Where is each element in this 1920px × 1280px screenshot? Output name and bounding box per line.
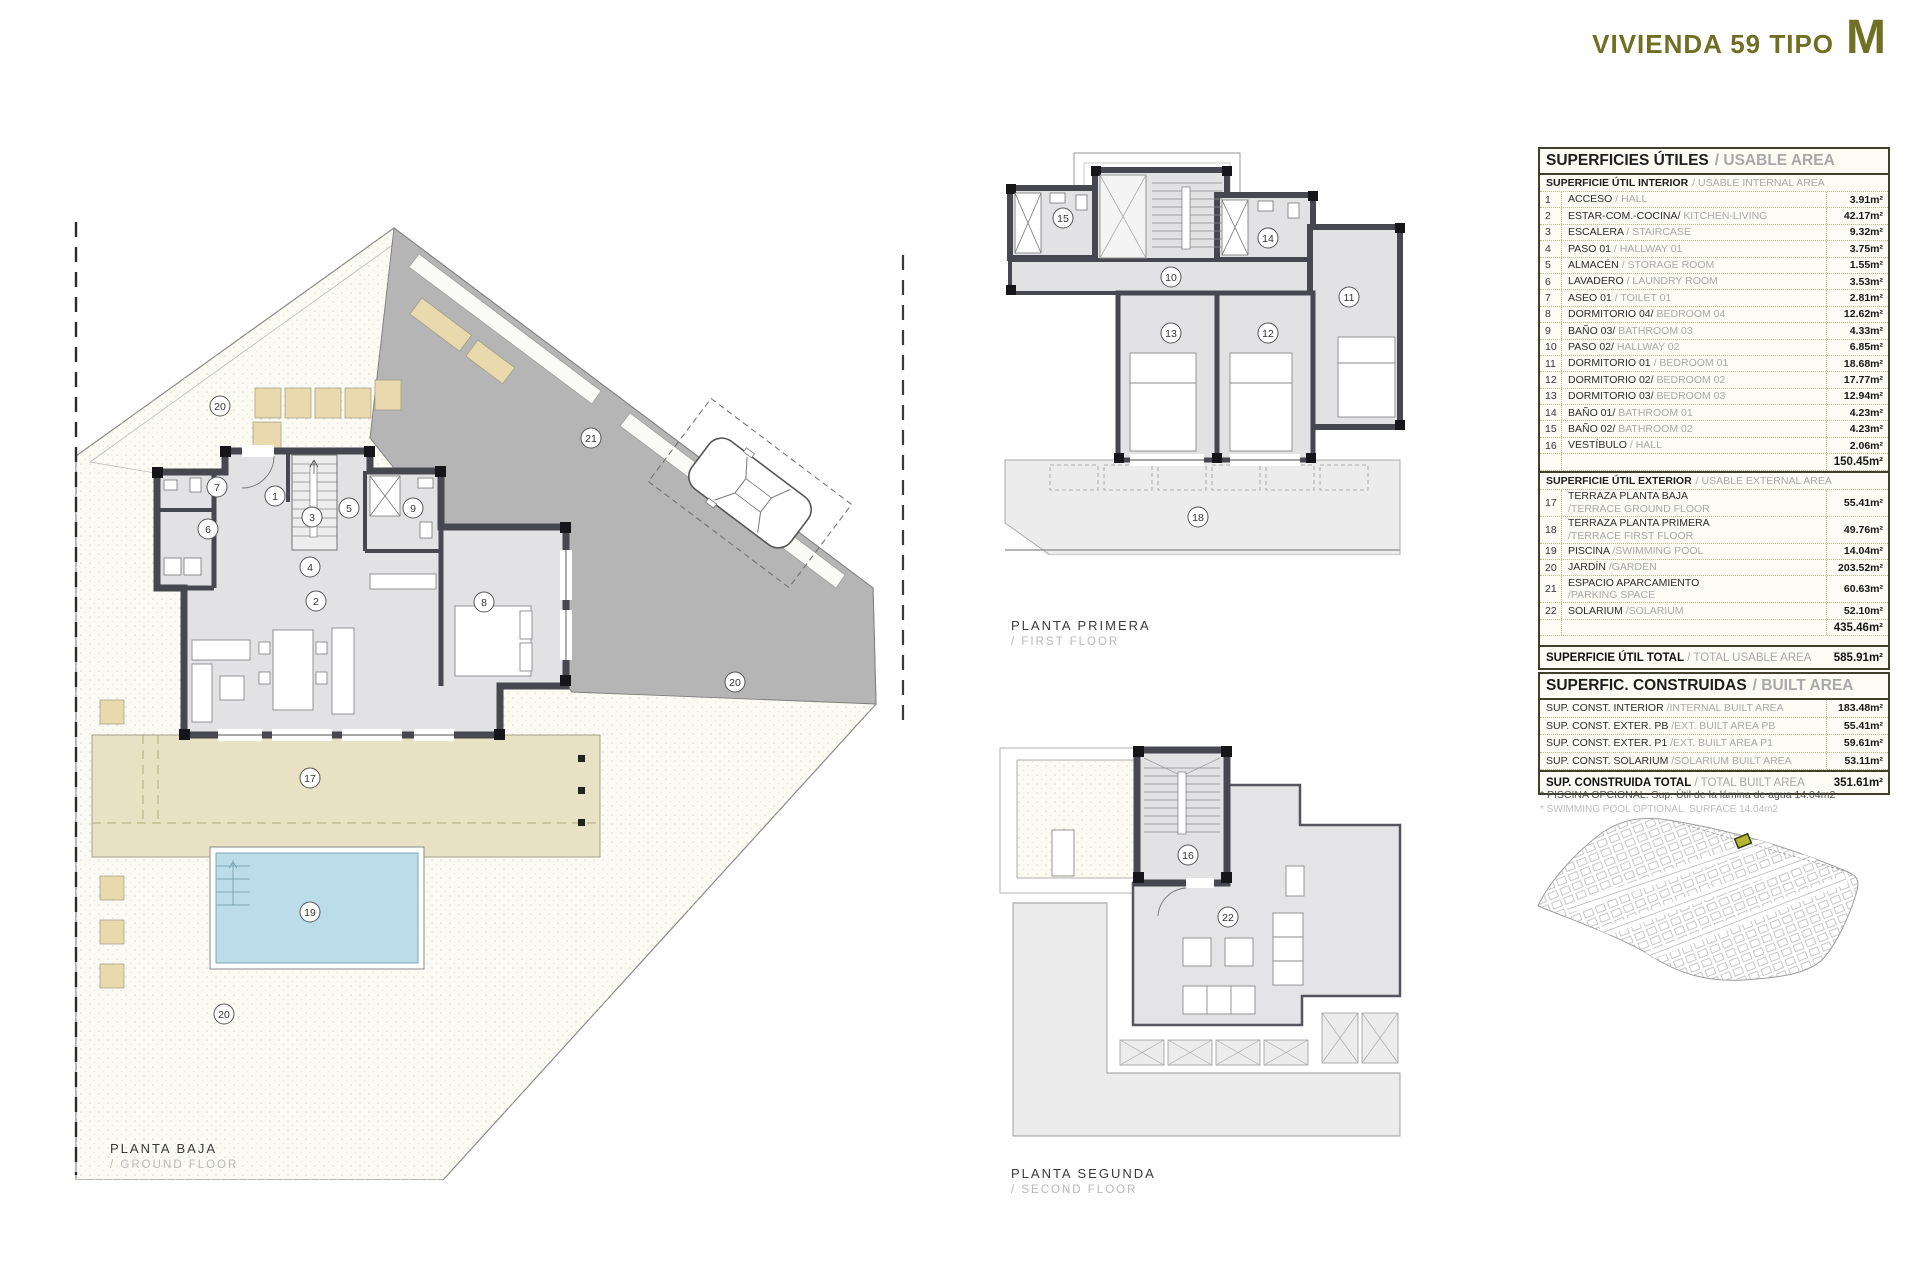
room-number-ground-storage: 5 [339, 498, 359, 518]
usable-area-table-title: SUPERFICIES ÚTILES / USABLE AREA [1540, 149, 1888, 175]
table-spacer [1540, 636, 1888, 645]
room-number-ground-hall: 1 [265, 486, 285, 506]
table-row: 19 PISCINA /SWIMMING POOL 14.04m² [1540, 544, 1888, 560]
room-number-ground-garden-right: 20 [725, 672, 745, 692]
room-number-ground-bath3: 9 [403, 498, 423, 518]
usable-area-table: SUPERFICIES ÚTILES / USABLE AREA SUPERFI… [1538, 147, 1890, 670]
table-row: 22 SOLARIUM /SOLARIUM 52.10m² [1540, 603, 1888, 619]
svg-text:6: 6 [205, 524, 211, 536]
room-number-first-terrace: 18 [1188, 507, 1208, 527]
table-row: 15 BAÑO 02/ BATHROOM 02 4.23m² [1540, 421, 1888, 437]
svg-text:20: 20 [729, 677, 741, 689]
label-second-floor: PLANTA SEGUNDA / SECOND FLOOR [1011, 1166, 1156, 1196]
footnote-pool-es: * PISCINA OPCIONAL. Sup. Útil de la lámi… [1540, 789, 1835, 801]
svg-text:9: 9 [410, 503, 416, 515]
room-number-ground-toilet: 7 [207, 477, 227, 497]
first-floor-terrace [1005, 460, 1400, 555]
room-number-ground-bedroom4: 8 [474, 592, 494, 612]
first-floor-plan: 15 14 10 11 13 12 18 [990, 125, 1430, 555]
table-row: SUP. CONST. EXTER. P1 /EXT. BUILT AREA P… [1540, 735, 1888, 753]
room-number-ground-garden-bottom: 20 [214, 1004, 234, 1024]
table-row: 11 DORMITORIO 01 / BEDROOM 01 18.68m² [1540, 356, 1888, 372]
room-number-ground-laundry: 6 [198, 519, 218, 539]
table-row: 13 DORMITORIO 03/ BEDROOM 03 12.94m² [1540, 389, 1888, 405]
room-number-ground-living: 2 [306, 591, 326, 611]
site-location-map [1528, 814, 1893, 999]
svg-text:2: 2 [313, 596, 319, 608]
svg-text:3: 3 [309, 512, 315, 524]
room-number-first-bath1: 14 [1258, 228, 1278, 248]
label-first-floor: PLANTA PRIMERA / FIRST FLOOR [1011, 618, 1151, 648]
table-row: 1 ACCESO / HALL 3.91m² [1540, 192, 1888, 208]
property-dashed-divider [898, 255, 908, 725]
ground-terrace [92, 735, 600, 857]
table-row: 14 BAÑO 01/ BATHROOM 01 4.23m² [1540, 405, 1888, 421]
svg-text:20: 20 [218, 1009, 230, 1021]
room-number-ground-terrace: 17 [300, 768, 320, 788]
svg-text:4: 4 [307, 562, 313, 574]
table-row: SUP. CONST. INTERIOR /INTERNAL BUILT ARE… [1540, 700, 1888, 718]
room-number-first-bedroom1: 11 [1339, 287, 1359, 307]
built-area-table-title: SUPERFIC. CONSTRUIDAS / BUILT AREA [1540, 674, 1888, 700]
table-row: 6 LAVADERO / LAUNDRY ROOM 3.53m² [1540, 274, 1888, 290]
table-row: 21 ESPACIO APARCAMIENTO/PARKING SPACE 60… [1540, 576, 1888, 603]
svg-text:14: 14 [1262, 233, 1274, 245]
svg-text:10: 10 [1165, 272, 1177, 284]
svg-text:19: 19 [304, 907, 316, 919]
room-number-first-bedroom2: 12 [1258, 323, 1278, 343]
usable-internal-header: SUPERFICIE ÚTIL INTERIOR / USABLE INTERN… [1540, 175, 1888, 192]
table-row: 2 ESTAR-COM.-COCINA/ KITCHEN-LIVING 42.1… [1540, 208, 1888, 224]
table-row: 16 VESTÍBULO / HALL 2.06m² [1540, 438, 1888, 454]
room-number-ground-stairs: 3 [302, 507, 322, 527]
room-number-second-solarium: 22 [1218, 907, 1238, 927]
usable-internal-rows: 1 ACCESO / HALL 3.91m² 2 ESTAR-COM.-COCI… [1540, 192, 1888, 454]
svg-text:21: 21 [585, 433, 597, 445]
room-number-first-bath2: 15 [1053, 208, 1073, 228]
room-number-ground-parking: 21 [581, 428, 601, 448]
svg-text:13: 13 [1165, 328, 1177, 340]
table-row: SUP. CONST. EXTER. PB /EXT. BUILT AREA P… [1540, 718, 1888, 736]
external-subtotal-row: 435.46m² [1540, 620, 1888, 636]
table-row: 20 JARDÍN /GARDEN 203.52m² [1540, 560, 1888, 576]
table-row: SUP. CONST. SOLARIUM /SOLARIUM BUILT ARE… [1540, 753, 1888, 771]
table-row: 17 TERRAZA PLANTA BAJA/TERRACE GROUND FL… [1540, 490, 1888, 517]
table-row: 4 PASO 01 / HALLWAY 01 3.75m² [1540, 241, 1888, 257]
staircase [292, 455, 337, 550]
plan-sheet: VIVIENDA 59 TIPO M [0, 0, 1920, 1280]
table-row: 12 DORMITORIO 02/ BEDROOM 02 17.77m² [1540, 372, 1888, 388]
label-ground-floor: PLANTA BAJA / GROUND FLOOR [110, 1141, 238, 1171]
usable-total-row: SUPERFICIE ÚTIL TOTAL / TOTAL USABLE ARE… [1540, 645, 1888, 668]
svg-text:5: 5 [346, 503, 352, 515]
built-area-rows: SUP. CONST. INTERIOR /INTERNAL BUILT ARE… [1540, 700, 1888, 770]
svg-text:1: 1 [272, 491, 278, 503]
svg-text:7: 7 [214, 482, 220, 494]
internal-subtotal-row: 150.45m² [1540, 454, 1888, 470]
table-row: 7 ASEO 01 / TOILET 01 2.81m² [1540, 290, 1888, 306]
room-number-first-bedroom3: 13 [1161, 323, 1181, 343]
svg-text:20: 20 [214, 401, 226, 413]
room-number-second-hall: 16 [1178, 845, 1198, 865]
svg-text:17: 17 [304, 773, 316, 785]
sheet-title: VIVIENDA 59 TIPO M [1592, 14, 1886, 62]
svg-text:16: 16 [1182, 850, 1194, 862]
table-row: 10 PASO 02/ HALLWAY 02 6.85m² [1540, 340, 1888, 356]
second-floor-plan: 16 22 [990, 728, 1430, 1158]
room-number-ground-pool: 19 [300, 902, 320, 922]
table-row: 3 ESCALERA / STAIRCASE 9.32m² [1540, 225, 1888, 241]
room-number-ground-garden-top: 20 [210, 396, 230, 416]
svg-text:12: 12 [1262, 328, 1274, 340]
svg-text:8: 8 [481, 597, 487, 609]
svg-text:11: 11 [1344, 292, 1355, 304]
usable-external-header: SUPERFICIE ÚTIL EXTERIOR / USABLE EXTERN… [1540, 471, 1888, 490]
svg-text:15: 15 [1057, 213, 1069, 225]
villa-type-letter: M [1846, 14, 1886, 62]
built-area-table: SUPERFIC. CONSTRUIDAS / BUILT AREA SUP. … [1538, 672, 1890, 795]
room-number-ground-hallway1: 4 [300, 557, 320, 577]
room-number-first-hallway2: 10 [1161, 267, 1181, 287]
ground-floor-plan: 20 21 20 1 2 3 4 5 6 7 8 9 17 19 20 [70, 210, 910, 1180]
roof-terrace [1000, 748, 1150, 893]
villa-title: VIVIENDA 59 TIPO [1592, 29, 1834, 60]
table-row: 9 BAÑO 03/ BATHROOM 03 4.33m² [1540, 323, 1888, 339]
svg-text:18: 18 [1192, 512, 1204, 524]
table-row: 18 TERRAZA PLANTA PRIMERA/TERRACE FIRST … [1540, 517, 1888, 544]
table-row: 5 ALMACÉN / STORAGE ROOM 1.55m² [1540, 258, 1888, 274]
svg-text:22: 22 [1222, 912, 1234, 924]
table-row: 8 DORMITORIO 04/ BEDROOM 04 12.62m² [1540, 307, 1888, 323]
